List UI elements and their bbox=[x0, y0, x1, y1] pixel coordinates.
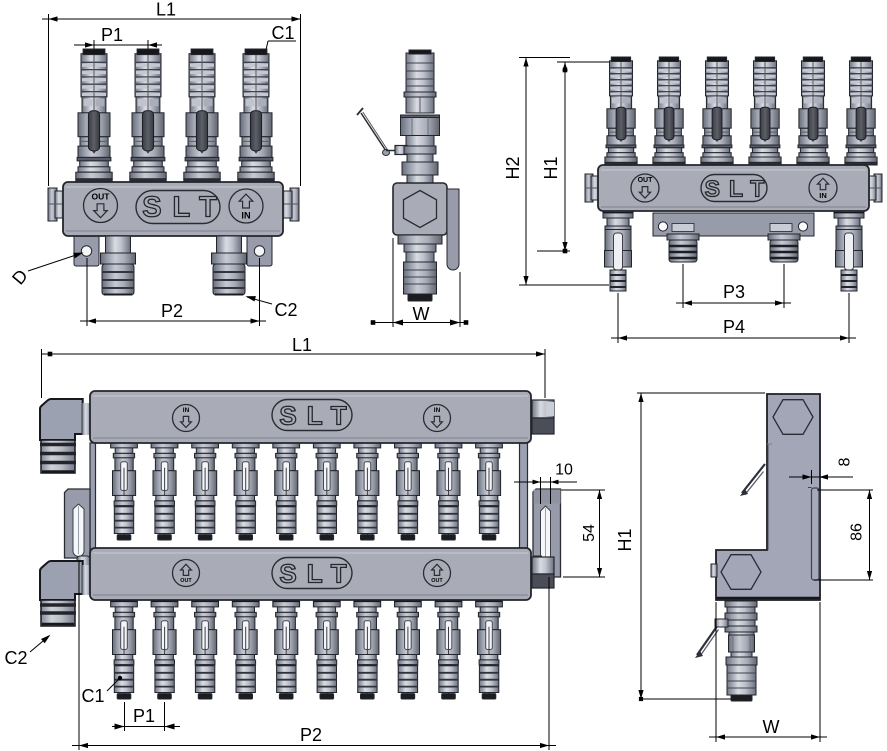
svg-text:P1: P1 bbox=[101, 25, 123, 45]
svg-text:IN: IN bbox=[819, 191, 827, 200]
svg-text:P2: P2 bbox=[161, 301, 183, 321]
svg-text:IN: IN bbox=[434, 407, 441, 414]
svg-text:C1: C1 bbox=[81, 686, 104, 706]
svg-text:OUT: OUT bbox=[638, 177, 654, 184]
svg-text:IN: IN bbox=[183, 407, 190, 414]
svg-text:54: 54 bbox=[581, 524, 598, 542]
svg-text:OUT: OUT bbox=[180, 578, 192, 584]
svg-text:SLT: SLT bbox=[279, 401, 356, 431]
svg-text:IN: IN bbox=[241, 210, 250, 220]
svg-text:P3: P3 bbox=[723, 282, 745, 302]
svg-text:C2: C2 bbox=[4, 648, 27, 668]
svg-text:P1: P1 bbox=[133, 706, 155, 726]
svg-text:L1: L1 bbox=[292, 335, 312, 355]
svg-text:P2: P2 bbox=[300, 725, 322, 745]
svg-text:SLT: SLT bbox=[142, 192, 228, 224]
svg-text:W: W bbox=[413, 304, 430, 324]
svg-text:H1: H1 bbox=[541, 156, 561, 179]
svg-text:P4: P4 bbox=[723, 317, 745, 337]
svg-text:H1: H1 bbox=[615, 528, 635, 551]
svg-text:10: 10 bbox=[555, 462, 573, 479]
svg-text:C1: C1 bbox=[271, 23, 294, 43]
svg-text:SLT: SLT bbox=[279, 559, 356, 589]
svg-text:8: 8 bbox=[837, 457, 854, 466]
svg-text:H2: H2 bbox=[503, 156, 523, 179]
svg-text:OUT: OUT bbox=[431, 578, 443, 584]
svg-text:L1: L1 bbox=[156, 0, 176, 20]
svg-text:C2: C2 bbox=[274, 300, 297, 320]
svg-text:W: W bbox=[763, 717, 780, 737]
svg-text:86: 86 bbox=[849, 523, 866, 541]
svg-text:OUT: OUT bbox=[92, 192, 111, 202]
svg-text:SLT: SLT bbox=[705, 176, 774, 202]
